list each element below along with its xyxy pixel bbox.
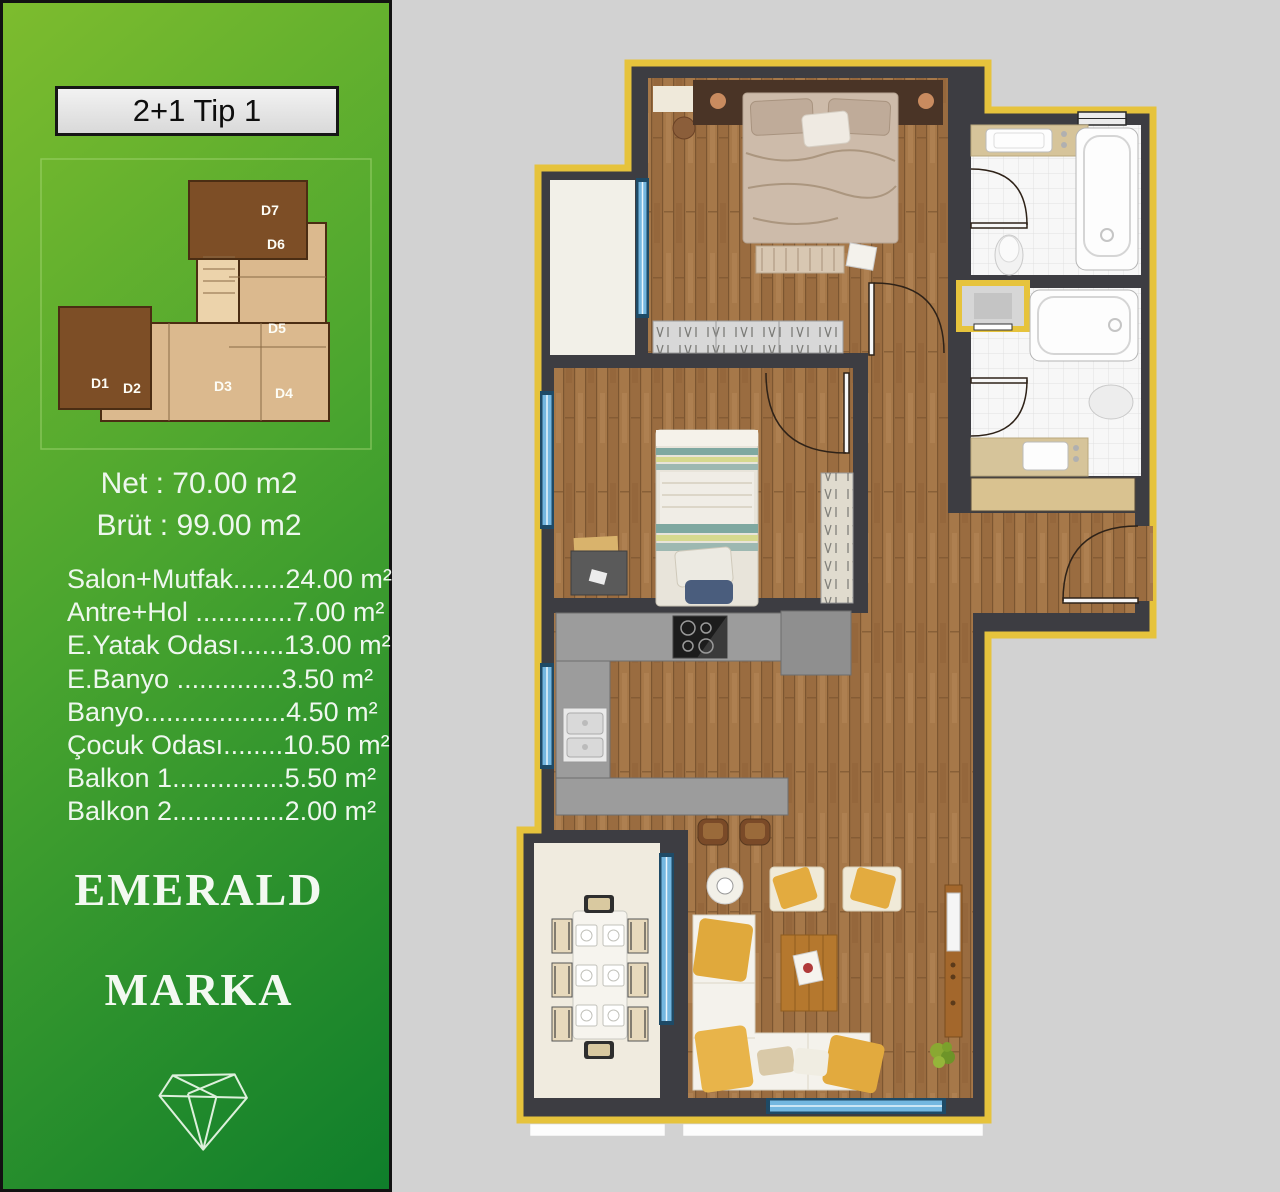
gross-area-text: Brüt : 99.00 m2	[3, 505, 395, 547]
brand-name-line1: EMERALD	[3, 863, 395, 916]
papers	[846, 243, 877, 270]
entry-door-opening	[1135, 526, 1153, 601]
plan-type-label: 2+1 Tip 1	[133, 93, 261, 129]
toilet	[1089, 385, 1133, 419]
kitchen-counter-top	[556, 613, 781, 661]
kitchen-counter-bottom	[556, 778, 788, 815]
brand-name-line2: MARKA	[3, 963, 395, 1016]
room-area-row: E.Banyo ..............3.50 m²	[67, 663, 392, 696]
kids-blanket	[685, 580, 733, 604]
area-summary: Net : 70.00 m2 Brüt : 99.00 m2	[3, 463, 395, 547]
bedroom-dresser	[653, 321, 843, 353]
diamond-logo-icon	[129, 1061, 255, 1161]
window-balcony1	[659, 853, 674, 1025]
installation-shaft	[959, 283, 1027, 330]
bathtub	[1030, 290, 1138, 361]
cooktop	[673, 616, 727, 658]
window-living-room	[766, 1098, 946, 1114]
unit-label-d5: D5	[268, 320, 286, 336]
bathtub	[1076, 128, 1138, 270]
room-area-row: Balkon 1...............5.50 m²	[67, 762, 392, 795]
balcony2-floor	[550, 180, 635, 355]
unit-d7-block	[189, 181, 307, 259]
sink	[986, 129, 1052, 152]
bedroom-stool	[673, 117, 695, 139]
site-key-plan: D7 D6 D5 D1 D2 D3 D4	[39, 157, 373, 451]
tv-sideboard	[945, 885, 962, 1037]
unit-label-d7: D7	[261, 202, 279, 218]
dining-balcony-furniture	[552, 895, 648, 1059]
exterior-sill-living	[683, 1124, 983, 1136]
net-area-text: Net : 70.00 m2	[3, 463, 395, 505]
coffee-table	[781, 935, 837, 1011]
unit-label-d1: D1	[91, 375, 109, 391]
window-balcony2	[636, 178, 649, 318]
kids-wardrobe	[821, 473, 853, 603]
armchair	[770, 866, 824, 911]
room-area-row: Çocuk Odası........10.50 m²	[67, 729, 392, 762]
room-area-row: Salon+Mutfak.......24.00 m²	[67, 563, 392, 596]
window-kids-room	[540, 391, 554, 529]
plan-type-title: 2+1 Tip 1	[55, 86, 339, 136]
room-areas-list: Salon+Mutfak.......24.00 m² Antre+Hol ..…	[67, 563, 392, 829]
window-kitchen	[540, 663, 554, 769]
room-area-row: Banyo...................4.50 m²	[67, 696, 392, 729]
exterior-sill-balcony1	[530, 1124, 665, 1136]
plan-sheet: 2+1 Tip 1 D7 D6 D5 D1	[0, 0, 1280, 1192]
kitchen-tall-unit	[781, 611, 851, 675]
sink	[1023, 442, 1068, 470]
sidebar: 2+1 Tip 1 D7 D6 D5 D1	[0, 0, 392, 1192]
single-bed	[656, 430, 758, 606]
round-side-table	[707, 868, 743, 904]
unit-label-d3: D3	[214, 378, 232, 394]
room-area-row: Antre+Hol .............7.00 m²	[67, 596, 392, 629]
armchair	[843, 866, 901, 911]
kitchen-sink	[563, 708, 607, 762]
unit-label-d4: D4	[275, 385, 293, 401]
floor-plan	[508, 53, 1168, 1148]
room-area-row: E.Yatak Odası......13.00 m²	[67, 629, 392, 662]
double-bed	[743, 93, 898, 243]
room-area-row: Balkon 2...............2.00 m²	[67, 795, 392, 828]
bed-bench	[756, 246, 844, 273]
unit-label-d6: D6	[267, 236, 285, 252]
hall-closet	[971, 478, 1135, 511]
unit-label-d2: D2	[123, 380, 141, 396]
